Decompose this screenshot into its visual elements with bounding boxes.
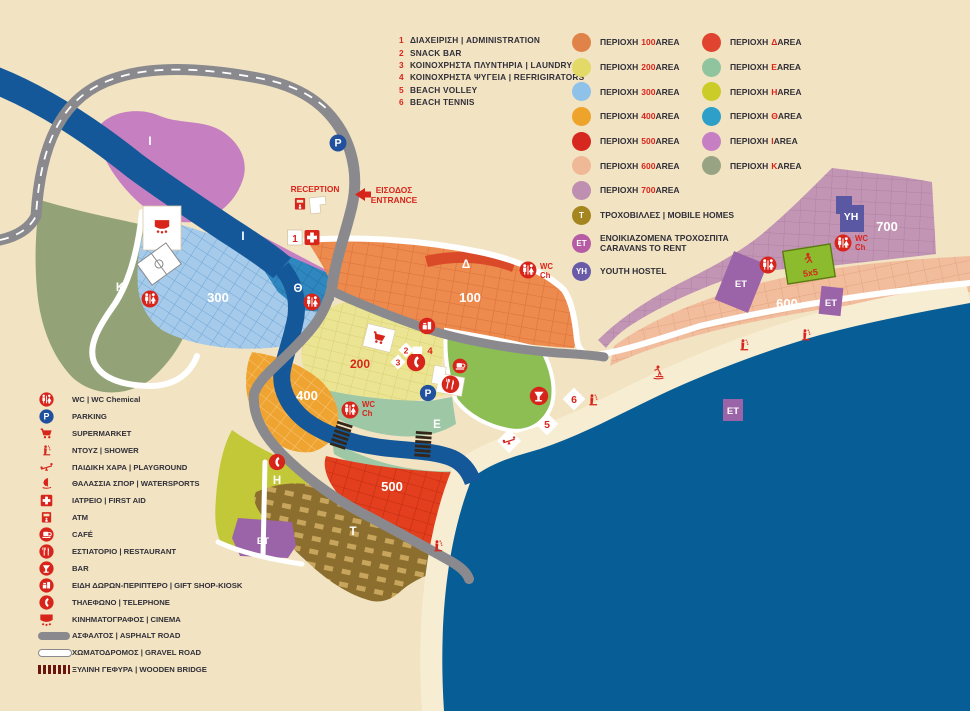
area-theta-dot [702,107,721,126]
legend-item: ΤΗΛΕΦΩΝΟ | TELEPHONE [38,594,242,611]
wc-chemical-icon [520,262,537,279]
supermarket-icon [38,425,55,442]
wc-icon [760,257,777,274]
wooden-bridge-swatch [38,665,70,674]
parking-icon [330,135,347,152]
legend-item: ΧΩΜΑΤΟΔΡΟΜΟΣ | GRAVEL ROAD [38,644,242,661]
area-400-dot [572,107,591,126]
facility-label: ΔΙΑΧΕΙΡΙΣΗ | ADMINISTRATION [410,35,540,45]
legend-item: 1ΔΙΑΧΕΙΡΙΣΗ | ADMINISTRATION [399,34,584,46]
area-label-tau: T [349,526,356,538]
legend-item: ΠΕΡΙΟΧΗ700AREA [572,178,734,203]
et-label: ET [825,298,837,309]
facility-number: 1 [399,35,405,45]
facilities-legend: 1ΔΙΑΧΕΙΡΙΣΗ | ADMINISTRATION 2SNACK BAR … [399,34,584,108]
svg-text:3: 3 [396,357,401,367]
entrance-label-en: ENTRANCE [371,195,418,205]
five-a-side-pitch: 5x5 [783,244,836,284]
svg-text:1: 1 [292,234,298,245]
legend-item: ΠΕΡΙΟΧΗΗAREA [702,79,805,104]
legend-item: ΠΕΡΙΟΧΗΘAREA [702,104,805,129]
legend-item: ΘΑΛΑΣΣΙΑ ΣΠΟΡ | WATERSPORTS [38,475,242,492]
wc-ch-label: WC [855,234,868,243]
legend-item: BAR [38,560,242,577]
area-label-200: 200 [350,357,370,371]
bar-icon [38,560,55,577]
facility-label: BEACH VOLLEY [410,85,477,95]
legend-item: ΙΑΤΡΕΙΟ | FIRST AID [38,492,242,509]
legend-item: ΑΣΦΑΛΤΟΣ | ASPHALT ROAD [38,627,242,644]
youth-hostel-dot: YH [572,262,591,281]
area-label-kappa: K [116,282,125,294]
wc-ch-label: Ch [362,409,373,418]
area-label-iota: I [241,231,244,243]
svg-text:2: 2 [404,345,409,355]
shower-icon [38,442,55,459]
legend-item: CAFÉ [38,526,242,543]
legend-item: ΚΙΝΗΜΑΤΟΓΡΑΦΟΣ | CINEMA [38,611,242,628]
area-label-epsilon: E [433,419,441,431]
area-200-dot [572,58,591,77]
area-label-eta: H [273,475,281,487]
facility-label: BEACH TENNIS [410,97,475,107]
et-label: ET [257,536,269,547]
bar-icon [530,387,548,405]
wc-ch-label: Ch [855,243,866,252]
legend-item: ΠΕΡΙΟΧΗΚAREA [702,153,805,178]
entrance-label-gr: ΕΙΣΟΔΟΣ [376,185,413,195]
legend-item: 6BEACH TENNIS [399,96,584,108]
svg-text:6: 6 [571,394,577,406]
legend-item: 2SNACK BAR [399,46,584,58]
telephone-icon [269,454,285,470]
legend-item: ΕΙΔΗ ΔΩΡΩΝ-ΠΕΡΙΠΤΕΡΟ | GIFT SHOP-KIOSK [38,577,242,594]
facility-number: 4 [399,72,405,82]
area-label-iota: I [148,136,151,148]
legend-item: 3ΚΟΙΝΟΧΡΗΣΤΑ ΠΛΥΝΤΗΡΙΑ | LAUNDRY [399,59,584,71]
area-label-600: 600 [776,296,798,311]
area-label-400: 400 [296,388,318,403]
playground-icon [38,459,55,476]
legend-item-youth-hostel: YHYOUTH HOSTEL [572,259,734,284]
facility-number: 2 [399,48,405,58]
wc-icon [38,391,55,408]
cinema-icon [38,611,55,628]
area-700-dot [572,181,591,200]
watersports-icon [38,475,55,492]
parking-icon [38,408,55,425]
area-epsilon-dot [702,58,721,77]
gift-shop-icon [38,577,55,594]
area-label-delta: Δ [462,259,470,271]
area-label-300: 300 [207,290,229,305]
first-aid-icon [38,492,55,509]
legend-item: ΠΕΡΙΟΧΗΙAREA [702,129,805,154]
wc-ch-label: Ch [540,271,551,280]
area-delta-dot [702,33,721,52]
yh-label: YH [844,211,859,223]
facility-label: SNACK BAR [410,48,462,58]
legend-item: ΠΕΡΙΟΧΗΕAREA [702,55,805,80]
parking-icon [420,385,436,401]
marker-1-administration: 1 [288,230,303,245]
legend-item: ΠΕΡΙΟΧΗΔAREA [702,30,805,55]
wc-icon [304,294,321,311]
reception-label: RECEPTION [291,184,340,194]
legend-item-mobile-homes: TΤΡΟΧΟΒΙΛΛΕΣ | MOBILE HOMES [572,203,734,228]
legend-item: PARKING [38,408,242,425]
et-label: ET [735,279,747,290]
camping-map-page: P [0,0,970,711]
legend-item: SUPERMARKET [38,425,242,442]
area-eta-dot [702,82,721,101]
wc-ch-label: WC [540,262,553,271]
area-100-dot [572,33,591,52]
legend-item: ATM [38,509,242,526]
legend-item-caravans: ETΕΝΟΙΚΙΑΖΟΜΕΝΑ ΤΡΟΧΟΣΠΙΤΑCARAVANS TO RE… [572,228,734,259]
wc-chemical-icon [835,235,852,252]
asphalt-road-swatch [38,632,70,640]
mobile-homes-dot: T [572,206,591,225]
facility-number: 5 [399,85,405,95]
gravel-road-swatch [38,649,72,657]
legend-item: ΝΤΟΥΖ | SHOWER [38,442,242,459]
et-label: ET [727,406,739,417]
facility-label: ΚΟΙΝΟΧΡΗΣΤΑ ΨΥΓΕΙΑ | REFRIGIRATORS [410,72,584,82]
legend-item: WC | WC Chemical [38,391,242,408]
area-label-100: 100 [459,290,481,305]
facility-number: 3 [399,60,405,70]
icon-legend: WC | WC Chemical PARKING SUPERMARKET ΝΤΟ… [38,391,242,678]
area-kappa-dot [702,156,721,175]
caravans-dot: ET [572,234,591,253]
telephone-icon [38,594,55,611]
wc-ch-label: WC [362,400,375,409]
cinema-icon [155,220,169,233]
wc-chemical-icon [342,402,359,419]
area-500-dot [572,132,591,151]
legend-item: ΞΥΛΙΝΗ ΓΕΦΥΡΑ | WOODEN BRIDGE [38,661,242,678]
facility-number: 6 [399,97,405,107]
area-300-dot [572,82,591,101]
area-600-dot [572,156,591,175]
svg-text:4: 4 [427,346,433,357]
wc-icon [142,291,159,308]
telephone-icon [407,353,425,371]
atm-icon [38,509,55,526]
svg-text:5: 5 [544,419,550,431]
legend-item: 5BEACH VOLLEY [399,84,584,96]
cafe-icon [38,526,55,543]
area-label-500: 500 [381,479,403,494]
atm-icon [295,198,305,209]
area-iota-dot [702,132,721,151]
restaurant-icon [38,543,55,560]
letter-areas-legend: ΠΕΡΙΟΧΗΔAREA ΠΕΡΙΟΧΗΕAREA ΠΕΡΙΟΧΗΗAREA Π… [702,30,805,178]
facility-label: ΚΟΙΝΟΧΡΗΣΤΑ ΠΛΥΝΤΗΡΙΑ | LAUNDRY [410,60,572,70]
legend-item: 4ΚΟΙΝΟΧΡΗΣΤΑ ΨΥΓΕΙΑ | REFRIGIRATORS [399,71,584,83]
area-label-theta: Θ [294,283,303,295]
legend-item: ΠΑΙΔΙΚΗ ΧΑΡΑ | PLAYGROUND [38,459,242,476]
cinema-building [143,206,181,250]
first-aid-icon [305,230,320,245]
area-label-700: 700 [876,219,898,234]
cafe-icon [453,359,468,374]
gift-shop-icon [419,318,436,335]
legend-item: ΕΣΤΙΑΤΟΡΙΟ | RESTAURANT [38,543,242,560]
